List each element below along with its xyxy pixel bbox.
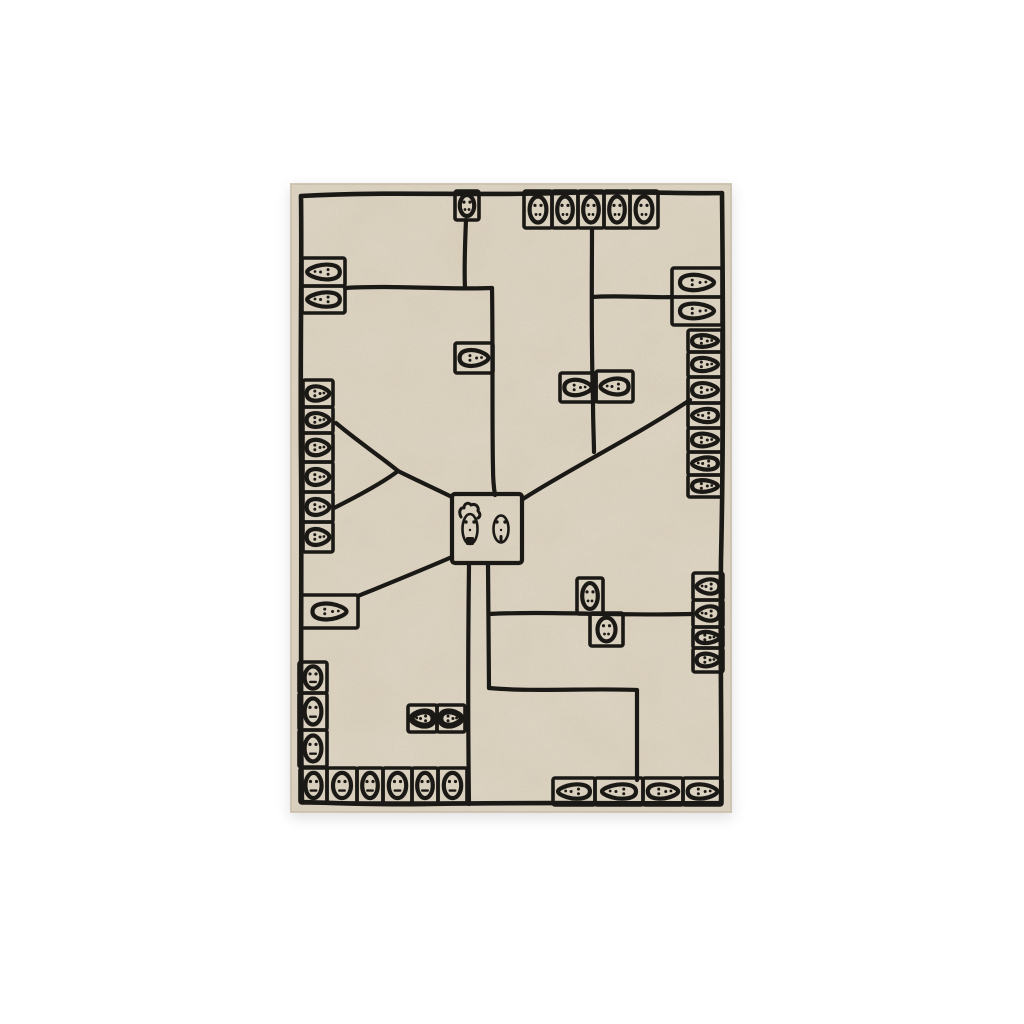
rug-photo: [0, 0, 1024, 1024]
face-dot: [313, 421, 316, 424]
face-dot: [707, 412, 710, 415]
face-dot: [710, 484, 713, 487]
drawn-line-h-lower-middle: [489, 688, 637, 690]
face-dot: [710, 388, 713, 391]
face-dot: [710, 339, 713, 342]
drawn-line-h-upper-right: [592, 296, 672, 297]
face-dot: [371, 780, 374, 783]
face-dot: [703, 656, 706, 659]
face-dot: [706, 389, 709, 392]
face-dot: [700, 361, 703, 364]
face-dot: [539, 213, 542, 216]
face-dot: [710, 438, 713, 441]
face-dot: [447, 715, 450, 718]
face-dot: [314, 672, 317, 675]
face-dot: [319, 536, 322, 539]
face-dot: [699, 281, 702, 284]
face-dot: [337, 780, 340, 783]
face-dot: [500, 529, 502, 531]
face-dot: [468, 359, 471, 362]
face-dot: [700, 391, 703, 394]
face-dot: [622, 792, 625, 795]
face-dot: [319, 446, 322, 449]
face-dot: [343, 780, 346, 783]
face-dot: [691, 279, 694, 282]
face-dot: [468, 354, 471, 357]
face-dot: [472, 520, 475, 523]
face-dot: [670, 790, 673, 793]
face-dot: [495, 520, 498, 523]
face-dot: [614, 213, 617, 216]
face-dot: [480, 356, 483, 359]
face-dot: [577, 788, 580, 791]
face-dot: [703, 661, 706, 664]
drawn-line-stem-top-single: [465, 220, 466, 288]
face-dot: [607, 633, 610, 636]
face-dot: [570, 790, 573, 793]
face-dot: [706, 485, 709, 488]
face-dot: [475, 357, 478, 360]
face-dot: [319, 419, 322, 422]
face-dot: [710, 587, 713, 590]
face-dot: [503, 520, 506, 523]
face-dot: [313, 448, 316, 451]
face-dot: [462, 201, 465, 204]
face-dot: [468, 208, 471, 211]
face-dot: [610, 385, 613, 388]
face-dot: [700, 441, 703, 444]
face-dot: [319, 271, 322, 274]
face-dot: [700, 482, 703, 485]
face-dot: [313, 416, 316, 419]
portrait-mouth: [466, 537, 474, 545]
face-dot: [606, 385, 609, 388]
face-dot: [710, 583, 713, 586]
face-dot: [701, 585, 704, 588]
face-dot: [697, 462, 700, 465]
face-dot: [577, 792, 580, 795]
face-dot: [713, 658, 716, 661]
face-dot: [573, 384, 576, 387]
face-dot: [707, 460, 710, 463]
face-dot: [323, 608, 326, 611]
face-dot: [591, 590, 594, 593]
face-dot: [639, 204, 642, 207]
face-dot: [697, 788, 700, 791]
product-image-canvas: [0, 0, 1024, 1024]
face-dot: [539, 204, 542, 207]
face-dot: [323, 535, 326, 538]
face-dot: [313, 503, 316, 506]
face-dot: [393, 780, 396, 783]
face-dot: [700, 386, 703, 389]
face-dot: [588, 213, 591, 216]
face-dot: [701, 462, 704, 465]
face-dot: [309, 780, 312, 783]
face-dot: [710, 610, 713, 613]
face-dot: [709, 659, 712, 662]
face-dot: [710, 363, 713, 366]
face-dot: [704, 790, 707, 793]
face-dot: [700, 487, 703, 490]
face-dot: [419, 717, 422, 720]
face-dot: [617, 383, 620, 386]
face-dot: [314, 706, 317, 709]
face-dot: [455, 717, 458, 720]
face-dot: [707, 416, 710, 419]
face-dot: [645, 213, 648, 216]
face-dot: [709, 636, 712, 639]
face-dot: [415, 717, 418, 720]
face-dot: [308, 672, 311, 675]
face-dot: [323, 475, 326, 478]
face-dot: [319, 392, 322, 395]
face-dot: [704, 281, 707, 284]
drawn-line-v-top-row-stem: [592, 229, 594, 452]
face-dot: [562, 213, 565, 216]
face-dot: [700, 342, 703, 345]
face-dot: [691, 283, 694, 286]
face-dot: [608, 624, 611, 627]
face-dot: [323, 505, 326, 508]
face-dot: [454, 780, 457, 783]
face-dot: [664, 790, 667, 793]
face-dot: [313, 390, 316, 393]
face-dot: [337, 610, 340, 613]
face-dot: [424, 715, 427, 718]
face-dot: [315, 780, 318, 783]
face-dot: [657, 792, 660, 795]
face-dot: [703, 634, 706, 637]
face-dot: [691, 307, 694, 310]
face-dot: [451, 717, 454, 720]
face-dot: [587, 600, 590, 603]
face-dot: [641, 213, 644, 216]
face-dot: [313, 394, 316, 397]
face-dot: [584, 386, 587, 389]
face-dot: [617, 387, 620, 390]
face-dot: [560, 204, 563, 207]
face-dot: [365, 780, 368, 783]
face-dot: [323, 418, 326, 421]
face-dot: [535, 213, 538, 216]
face-dot: [327, 300, 330, 303]
face-dot: [706, 340, 709, 343]
face-dot: [566, 204, 569, 207]
face-dot: [645, 204, 648, 207]
face-dot: [710, 614, 713, 617]
face-dot: [308, 706, 311, 709]
face-dot: [709, 790, 712, 793]
face-dot: [573, 388, 576, 391]
drawn-line-v-center-right: [488, 564, 489, 688]
face-dot: [323, 446, 326, 449]
face-dot: [592, 204, 595, 207]
face-dot: [327, 273, 330, 276]
face-dot: [313, 533, 316, 536]
drawn-line-h-upper-left: [345, 287, 492, 288]
face-dot: [706, 439, 709, 442]
face-dot: [468, 201, 471, 204]
face-dot: [618, 213, 621, 216]
face-dot: [314, 743, 317, 746]
face-dot: [319, 506, 322, 509]
face-dot: [657, 788, 660, 791]
face-dot: [464, 520, 467, 523]
face-dot: [564, 790, 567, 793]
face-dot: [420, 780, 423, 783]
face-dot: [469, 529, 471, 531]
face-dot: [603, 633, 606, 636]
face-dot: [612, 204, 615, 207]
face-dot: [622, 788, 625, 791]
face-dot: [424, 719, 427, 722]
face-dot: [533, 204, 536, 207]
face-dot: [327, 268, 330, 271]
face-dot: [399, 780, 402, 783]
face-dot: [691, 312, 694, 315]
face-dot: [566, 213, 569, 216]
face-dot: [331, 610, 334, 613]
face-dot: [308, 743, 311, 746]
face-dot: [609, 790, 612, 793]
face-dot: [464, 208, 467, 211]
face-dot: [697, 414, 700, 417]
face-dot: [585, 590, 588, 593]
face-dot: [319, 476, 322, 479]
portrait-mouth: [500, 535, 503, 543]
face-dot: [448, 780, 451, 783]
face-dot: [713, 636, 716, 639]
face-dot: [314, 270, 317, 273]
face-dot: [707, 464, 710, 467]
face-dot: [592, 213, 595, 216]
face-dot: [323, 612, 326, 615]
face-dot: [704, 585, 707, 588]
face-dot: [706, 363, 709, 366]
face-dot: [313, 473, 316, 476]
face-dot: [700, 365, 703, 368]
face-dot: [703, 638, 706, 641]
face-dot: [426, 780, 429, 783]
face-dot: [700, 337, 703, 340]
face-dot: [591, 600, 594, 603]
rug-artwork: [291, 184, 731, 812]
face-dot: [579, 386, 582, 389]
face-dot: [447, 719, 450, 722]
face-dot: [313, 444, 316, 447]
face-dot: [700, 436, 703, 439]
face-dot: [704, 309, 707, 312]
face-dot: [313, 508, 316, 511]
face-dot: [701, 414, 704, 417]
face-dot: [618, 204, 621, 207]
face-dot: [586, 204, 589, 207]
face-dot: [323, 392, 326, 395]
face-dot: [701, 612, 704, 615]
face-dot: [313, 538, 316, 541]
face-dot: [319, 298, 322, 301]
face-dot: [614, 790, 617, 793]
face-dot: [602, 624, 605, 627]
face-dot: [313, 478, 316, 481]
face-dot: [327, 296, 330, 299]
face-dot: [699, 310, 702, 313]
face-dot: [314, 298, 317, 301]
face-dot: [697, 792, 700, 795]
face-dot: [704, 612, 707, 615]
